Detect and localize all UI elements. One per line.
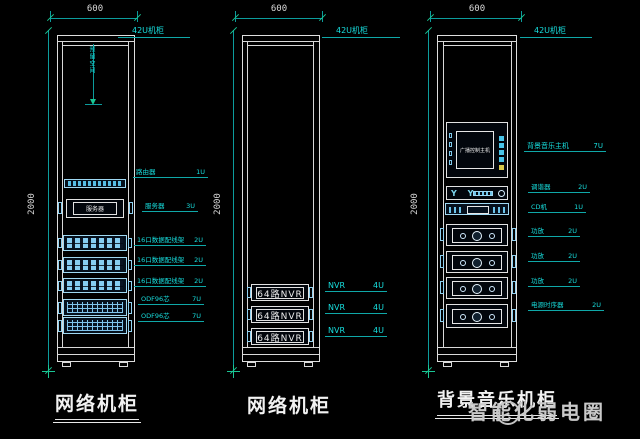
annotation-u: 4U xyxy=(373,327,384,335)
dimension-height-text: 2000 xyxy=(410,186,420,222)
mounting-ear xyxy=(128,238,132,248)
cabinet-foot xyxy=(500,362,509,367)
mounting-ear xyxy=(129,202,133,214)
mounting-ear xyxy=(512,281,516,294)
annotation-label: 16口数据配线架 xyxy=(137,277,184,285)
mounting-ear xyxy=(309,331,313,342)
annotation-tuner: 调谐器 2U xyxy=(528,182,590,193)
frame-bottom-line xyxy=(438,354,516,355)
annotation-label: 16口数据配线架 xyxy=(137,236,184,244)
annotation-u: 3U xyxy=(186,202,195,210)
cabinet-type-label: 42U机柜 xyxy=(520,26,592,38)
amplifier-faceplate xyxy=(452,228,502,243)
annotation-nvr: NVR 4U xyxy=(325,326,387,337)
rack-rail xyxy=(247,41,248,348)
cabinet-foot xyxy=(247,362,256,367)
annotation-label: NVR xyxy=(328,282,345,290)
odf-panel xyxy=(63,299,127,316)
cad-rack-elevation-drawing: 600 2000 42U机柜 预留空间 服务器 xyxy=(0,0,640,439)
sequencer-faceplate xyxy=(452,309,502,324)
dimension-line xyxy=(50,18,138,19)
host-side-mark xyxy=(449,133,452,138)
nvr-label: 64路NVR xyxy=(257,310,303,320)
dimension-line xyxy=(48,30,49,372)
mounting-ear xyxy=(440,281,444,294)
cabinet-foot xyxy=(443,362,452,367)
mounting-ear xyxy=(58,260,62,270)
mounting-ear xyxy=(128,302,132,314)
annotation-u: 4U xyxy=(373,304,384,312)
mounting-ear xyxy=(58,238,62,248)
cabinet-caption: 网络机柜 xyxy=(55,389,139,420)
dimension-width-text: 600 xyxy=(460,4,494,14)
frame-top-line xyxy=(242,41,320,42)
frame-bottom-line xyxy=(243,347,319,348)
annotation-label: 功放 xyxy=(531,227,544,235)
annotation-u: 2U xyxy=(194,236,203,244)
dimension-line xyxy=(233,30,234,372)
dimension-line xyxy=(428,30,429,372)
annotation-label: CD机 xyxy=(531,203,547,211)
patch-panel-16port xyxy=(63,257,127,273)
annotation-label: 功放 xyxy=(531,252,544,260)
cabinet-type-label: 42U机柜 xyxy=(322,26,400,38)
leader-dash xyxy=(85,104,102,105)
frame-bottom-line xyxy=(58,347,134,348)
odf-panel xyxy=(63,317,127,334)
amp-knob-icon xyxy=(489,233,495,239)
dimension-cross xyxy=(428,365,429,378)
amplifier-faceplate xyxy=(452,281,502,296)
annotation-router: 路由器 1U xyxy=(133,167,208,178)
frame-top-line xyxy=(443,45,511,46)
host-side-mark xyxy=(449,160,452,165)
annotation-server: 服务器 3U xyxy=(142,201,198,212)
host-button xyxy=(499,136,504,141)
annotation-patch-panel: 16口数据配线架 2U xyxy=(134,276,206,287)
cd-ports xyxy=(449,207,462,213)
annotation-nvr: NVR 4U xyxy=(325,281,387,292)
frame-bottom-line xyxy=(438,347,516,348)
tuner-display xyxy=(473,191,493,196)
annotation-label: NVR xyxy=(328,304,345,312)
power-sequencer-device xyxy=(446,304,508,328)
annotation-label: 功放 xyxy=(531,277,544,285)
mounting-ear xyxy=(512,255,516,268)
dimension-line xyxy=(235,18,323,19)
annotation-odf: ODF96芯 7U xyxy=(138,294,204,305)
dimension-cross xyxy=(48,365,49,378)
nvr-faceplate: 64路NVR xyxy=(256,309,304,321)
patch-panel-modules xyxy=(67,238,123,248)
host-side-mark xyxy=(449,151,452,156)
patch-panel-16port xyxy=(63,235,127,251)
annotation-amplifier: 功放 2U xyxy=(528,251,580,262)
amp-knob-icon xyxy=(489,286,495,292)
mounting-ear xyxy=(58,202,62,214)
patch-panel-modules xyxy=(67,281,123,290)
router-device xyxy=(64,179,126,188)
server-faceplate: 服务器 xyxy=(73,202,117,215)
annotation-u: 7U xyxy=(593,142,603,150)
frame-top-line xyxy=(247,45,314,46)
amp-knob-icon xyxy=(472,258,482,268)
annotation-label: 16口数据配线架 xyxy=(137,256,184,264)
rack-rail xyxy=(443,41,444,348)
annotation-u: 2U xyxy=(578,183,587,191)
bgm-host-screen: 广播控制主机 xyxy=(456,131,494,169)
annotation-odf: ODF96芯 7U xyxy=(138,311,204,322)
frame-bottom-line xyxy=(243,354,319,355)
nvr-label: 64路NVR xyxy=(257,332,303,342)
annotation-u: 2U xyxy=(194,277,203,285)
annotation-u: 2U xyxy=(568,252,577,260)
patch-panel-modules xyxy=(67,260,123,270)
annotation-label: ODF96芯 xyxy=(141,295,170,303)
mounting-ear xyxy=(440,228,444,241)
amp-knob-icon xyxy=(489,314,495,320)
mounting-ear xyxy=(440,309,444,322)
odf-grid xyxy=(67,320,123,331)
amplifier-faceplate xyxy=(452,255,502,270)
annotation-patch-panel: 16口数据配线架 2U xyxy=(134,255,206,266)
annotation-bgm-host: 背景音乐主机 7U xyxy=(524,141,606,152)
annotation-label: ODF96芯 xyxy=(141,312,170,320)
frame-top-line xyxy=(57,41,135,42)
annotation-u: 4U xyxy=(373,282,384,290)
tuner-knob xyxy=(498,190,505,197)
annotation-u: 2U xyxy=(568,277,577,285)
mounting-ear xyxy=(309,287,313,298)
dimension-width-text: 600 xyxy=(262,4,296,14)
annotation-label: 路由器 xyxy=(136,168,156,176)
frame-top-line xyxy=(437,41,517,42)
amp-knob-icon xyxy=(460,314,466,320)
nvr-device: 64路NVR xyxy=(251,284,309,301)
mounting-ear xyxy=(58,281,62,291)
frame-bottom-line xyxy=(58,354,134,355)
dimension-width-text: 600 xyxy=(78,4,112,14)
rack-rail xyxy=(511,41,512,348)
amp-knob-icon xyxy=(460,233,466,239)
tuner-device: Y Y xyxy=(446,186,508,200)
annotation-u: 7U xyxy=(192,295,201,303)
amp-knob-icon xyxy=(460,260,466,266)
annotation-u: 2U xyxy=(592,301,601,309)
cabinet-foot xyxy=(119,362,128,367)
dimension-cross xyxy=(233,365,234,378)
amp-knob-icon xyxy=(472,231,482,241)
router-ports xyxy=(68,181,122,186)
annotation-label: 调谐器 xyxy=(531,183,551,191)
host-button-yellow xyxy=(499,165,504,170)
amp-knob-icon xyxy=(489,260,495,266)
bgm-host-label: 广播控制主机 xyxy=(457,132,493,168)
annotation-label: 电源时序器 xyxy=(531,301,564,309)
cabinet-foot xyxy=(62,362,71,367)
annotation-power-sequencer: 电源时序器 2U xyxy=(528,300,604,311)
mounting-ear xyxy=(128,281,132,291)
mounting-ear xyxy=(309,309,313,320)
cabinet-foot xyxy=(304,362,313,367)
annotation-cd: CD机 1U xyxy=(528,202,586,213)
watermark-text: 智能化弱电圈 xyxy=(468,396,606,425)
amplifier-device xyxy=(446,277,508,299)
nvr-device: 64路NVR xyxy=(251,306,309,323)
dimension-height-text: 2000 xyxy=(213,186,223,222)
annotation-label: NVR xyxy=(328,327,345,335)
mounting-ear xyxy=(128,320,132,332)
amp-knob-icon xyxy=(472,312,482,322)
host-side-mark xyxy=(449,142,452,147)
nvr-faceplate: 64路NVR xyxy=(256,331,304,343)
cabinet-type-label: 42U机柜 xyxy=(118,26,190,38)
amplifier-device xyxy=(446,251,508,273)
annotation-u: 1U xyxy=(196,168,205,176)
annotation-patch-panel: 16口数据配线架 2U xyxy=(134,235,206,246)
server-label: 服务器 xyxy=(74,203,116,214)
annotation-u: 2U xyxy=(568,227,577,235)
amplifier-device xyxy=(446,224,508,246)
mounting-ear xyxy=(512,228,516,241)
cd-player-device xyxy=(445,203,509,215)
patch-panel-16port xyxy=(63,278,127,293)
odf-grid xyxy=(67,302,123,313)
host-button xyxy=(499,150,504,155)
cd-ports xyxy=(493,207,507,213)
host-button xyxy=(499,143,504,148)
vertical-note-text: 预留空间 xyxy=(87,46,96,94)
dimension-line xyxy=(430,18,522,19)
nvr-faceplate: 64路NVR xyxy=(256,287,304,299)
mounting-ear xyxy=(128,260,132,270)
annotation-amplifier: 功放 2U xyxy=(528,226,580,237)
annotation-u: 2U xyxy=(194,256,203,264)
cabinet-caption: 网络机柜 xyxy=(247,391,331,418)
cd-display xyxy=(467,206,489,214)
amp-knob-icon xyxy=(460,286,466,292)
annotation-label: 服务器 xyxy=(145,202,165,210)
mounting-ear xyxy=(440,255,444,268)
mounting-ear xyxy=(512,309,516,322)
annotation-label: 背景音乐主机 xyxy=(527,142,569,150)
host-button xyxy=(499,157,504,162)
nvr-label: 64路NVR xyxy=(257,288,303,298)
annotation-amplifier: 功放 2U xyxy=(528,276,580,287)
annotation-u: 1U xyxy=(574,203,583,211)
annotation-nvr: NVR 4U xyxy=(325,303,387,314)
annotation-u: 7U xyxy=(192,312,201,320)
nvr-device: 64路NVR xyxy=(251,328,309,345)
mounting-ear xyxy=(58,302,62,314)
rack-rail xyxy=(313,41,314,348)
amp-knob-icon xyxy=(472,284,482,294)
dimension-height-text: 2000 xyxy=(27,186,37,222)
mounting-ear xyxy=(58,320,62,332)
